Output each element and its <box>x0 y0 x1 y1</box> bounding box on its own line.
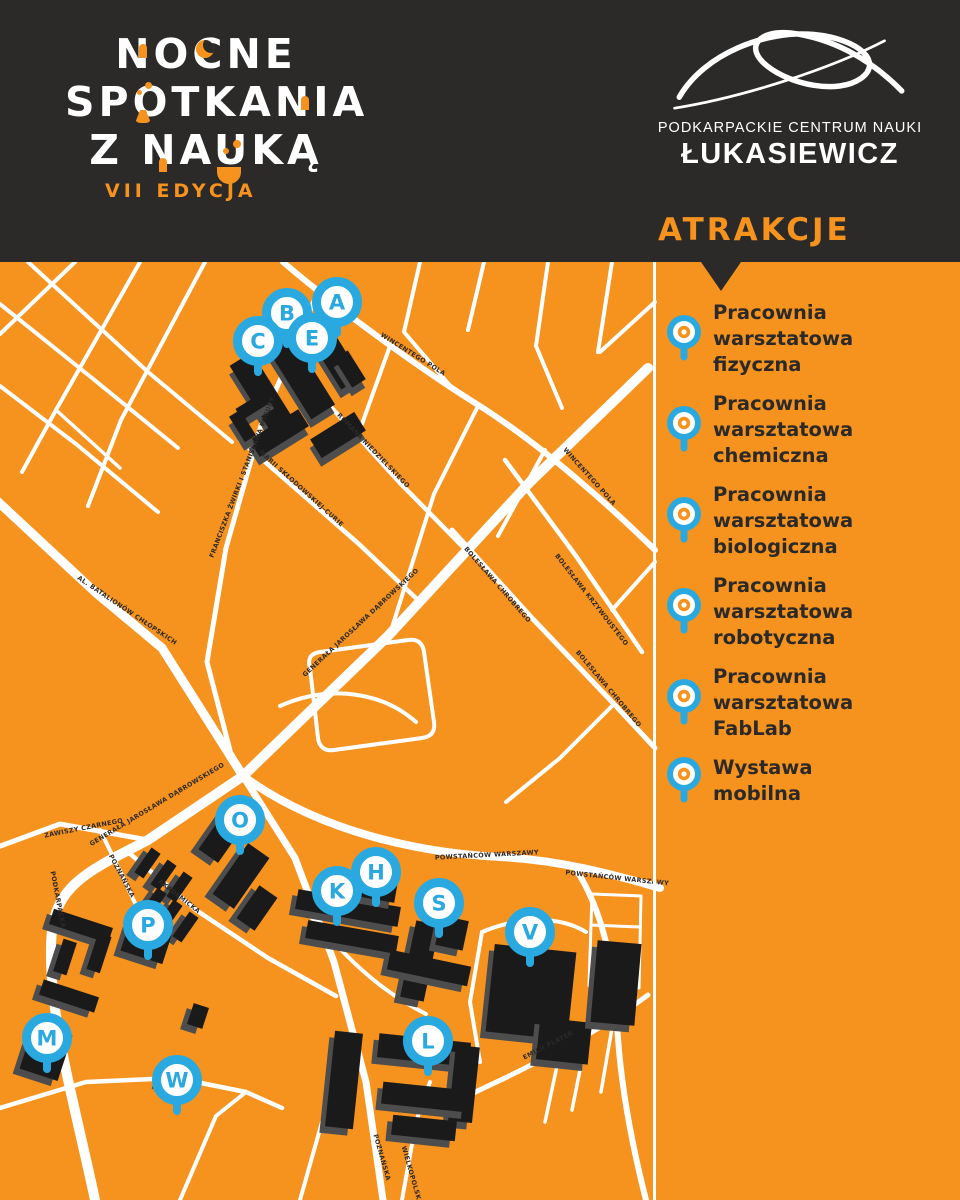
map-pin-letter: W <box>165 1069 188 1093</box>
legend-item-biologiczna: Pracownia warsztatowa biologiczna <box>664 482 954 560</box>
map-pin-letter: M <box>37 1027 58 1051</box>
legend-label: Pracownia warsztatowa chemiczna <box>713 391 853 469</box>
brand-line-2: ŁUKASIEWICZ <box>645 138 935 171</box>
legend-label: Wystawa mobilna <box>713 755 812 807</box>
bubble-icon <box>145 82 152 89</box>
map-pin-letter: P <box>140 914 155 938</box>
map-pin-letter: L <box>421 1030 434 1054</box>
map-pin-icon <box>664 313 704 365</box>
map-pin-icon <box>664 495 704 547</box>
brand-line-1: PODKARPACKIE CENTRUM NAUKI <box>645 120 935 136</box>
door-icon <box>159 158 167 172</box>
map-pin-letter: H <box>367 861 385 885</box>
bubble-icon <box>233 140 241 148</box>
map-pin-icon <box>664 404 704 456</box>
map-pin-letter: B <box>279 302 295 326</box>
bubble-icon <box>223 148 229 154</box>
legend-item-robotyczna: Pracownia warsztatowa robotyczna <box>664 573 954 651</box>
science-center-logo: PODKARPACKIE CENTRUM NAUKI ŁUKASIEWICZ <box>645 22 935 171</box>
map-pin-letter: S <box>431 892 446 916</box>
swoosh-logo-icon <box>648 22 933 116</box>
edition-label: VII EDYCJA <box>65 180 347 202</box>
map-pin-icon <box>664 586 704 638</box>
legend-item-fablab: Pracownia warsztatowa FabLab <box>664 664 954 742</box>
legend-label: Pracownia warsztatowa FabLab <box>713 664 853 742</box>
logo-line-3: Z NAUKĄ <box>65 126 347 174</box>
event-logo: NOCNE SPOTKANIA Z NAUKĄ VII EDYCJA <box>65 30 347 230</box>
attractions-legend: Pracownia warsztatowa fizyczna Pracownia… <box>664 300 954 820</box>
bubble-icon <box>137 90 142 95</box>
map-pin-letter: A <box>329 291 346 315</box>
map-pin-letter: E <box>305 327 319 351</box>
map-pin-icon <box>664 677 704 729</box>
attractions-title: ATRAKCJE <box>658 212 851 248</box>
legend-item-fizyczna: Pracownia warsztatowa fizyczna <box>664 300 954 378</box>
map-pin-letter: C <box>250 330 265 354</box>
legend-label: Pracownia warsztatowa fizyczna <box>713 300 853 378</box>
map-pin-letter: V <box>522 921 539 945</box>
door-icon <box>301 96 309 110</box>
map-pin-letter: K <box>329 880 346 904</box>
header-bar: NOCNE SPOTKANIA Z NAUKĄ VII EDYCJA PODKA… <box>0 0 960 262</box>
road <box>591 925 640 927</box>
building <box>585 940 642 1033</box>
moon-icon <box>196 40 214 58</box>
legend-item-chemiczna: Pracownia warsztatowa chemiczna <box>664 391 954 469</box>
map-pin-icon <box>664 755 704 807</box>
map-pin-letter: O <box>231 809 249 833</box>
pointer-triangle-icon <box>701 262 741 291</box>
legend-label: Pracownia warsztatowa robotyczna <box>713 573 853 651</box>
door-icon <box>139 44 147 58</box>
map-sidebar-divider <box>653 262 656 1200</box>
legend-item-wystawa: Wystawa mobilna <box>664 755 954 807</box>
legend-label: Pracownia warsztatowa biologiczna <box>713 482 853 560</box>
